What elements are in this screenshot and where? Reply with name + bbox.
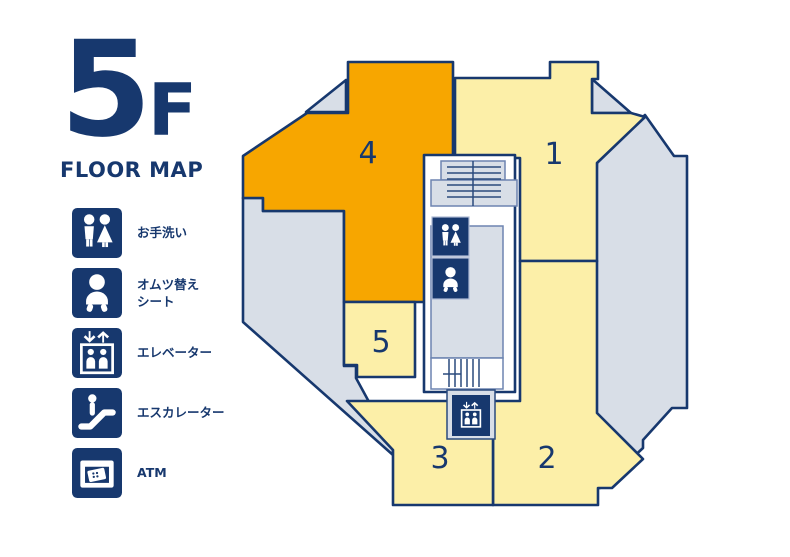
legend-label: エスカレーター xyxy=(137,404,225,422)
map-elevator-icon xyxy=(447,390,495,439)
floor-title: 5F FLOOR MAP xyxy=(60,24,203,182)
area-2-label: 2 xyxy=(537,441,556,476)
legend-item-elevator: エレベーター xyxy=(72,328,225,378)
floor-map-page: 5F FLOOR MAP お手洗い オムツ替え シート エレベーター エスカレー… xyxy=(0,0,790,557)
elevator-icon xyxy=(72,328,122,378)
legend-item-diaper: オムツ替え シート xyxy=(72,268,225,318)
floor-number: 5F xyxy=(60,24,203,156)
area-3-label: 3 xyxy=(430,441,449,476)
atm-icon xyxy=(72,448,122,498)
area-4-label: 4 xyxy=(358,136,377,171)
legend-item-atm: ATM xyxy=(72,448,225,498)
gray-wedge-top-right xyxy=(592,79,631,113)
staircase-top xyxy=(431,161,517,206)
area-5-label: 5 xyxy=(371,325,390,360)
restroom-icon xyxy=(72,208,122,258)
floor-map-subtitle: FLOOR MAP xyxy=(60,158,203,182)
map-restroom-icon xyxy=(432,217,469,256)
diaper-changing-icon xyxy=(72,268,122,318)
legend-item-restroom: お手洗い xyxy=(72,208,225,258)
area-1-label: 1 xyxy=(544,137,563,172)
legend-label: ATM xyxy=(137,464,167,482)
map-diaper-changing-icon xyxy=(432,258,469,299)
legend-label: オムツ替え シート xyxy=(137,276,199,311)
legend-item-escalator: エスカレーター xyxy=(72,388,225,438)
escalator-icon xyxy=(72,388,122,438)
legend-label: エレベーター xyxy=(137,344,212,362)
legend-label: お手洗い xyxy=(137,224,187,242)
legend: お手洗い オムツ替え シート エレベーター エスカレーター ATM xyxy=(72,208,225,498)
staircase-bottom xyxy=(431,358,503,389)
floor-map: 1 2 3 4 5 xyxy=(230,45,700,520)
gray-wedge-top-left xyxy=(306,80,346,112)
